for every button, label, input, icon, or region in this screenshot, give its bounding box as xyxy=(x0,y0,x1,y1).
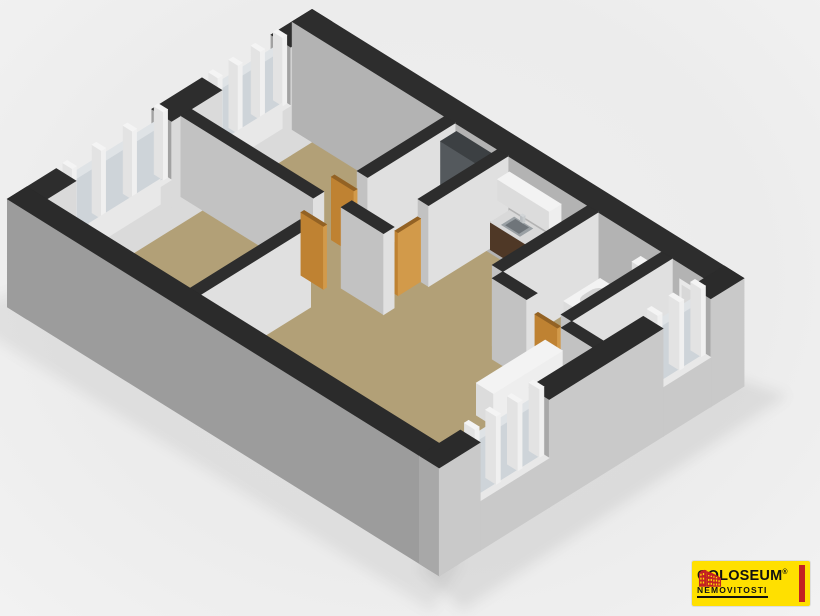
se-wall-segment-3 xyxy=(419,430,480,576)
registered-mark: ® xyxy=(782,569,787,576)
kitchen-faucet xyxy=(520,214,525,223)
bedroom1-window-post-2 xyxy=(123,123,137,199)
bedroom1-window-post-3 xyxy=(92,142,106,219)
living-window-post-3 xyxy=(486,407,501,484)
entry-window-post-2 xyxy=(669,293,684,370)
entry-window-post-1 xyxy=(691,279,706,356)
bedroom2-window-post-2 xyxy=(251,43,265,120)
bedroom1-door xyxy=(301,210,327,289)
coloseum-logo: COLOSEUM® NEMOVITOSTI xyxy=(692,561,810,606)
logo-red-bar xyxy=(799,565,805,602)
living-window-post-1 xyxy=(529,380,544,457)
bedroom2-window-post-1 xyxy=(273,29,287,106)
hall-door xyxy=(395,217,421,296)
logo-row: COLOSEUM® NEMOVITOSTI xyxy=(697,565,794,602)
bedroom1-window-post-1 xyxy=(154,104,168,181)
colosseum-icon xyxy=(697,565,723,589)
living-window-post-2 xyxy=(507,394,522,471)
floorplan-3d-render: COLOSEUM® NEMOVITOSTI xyxy=(0,0,820,616)
floorplan-svg xyxy=(0,0,820,616)
bedroom2-window-post-3 xyxy=(229,57,243,134)
